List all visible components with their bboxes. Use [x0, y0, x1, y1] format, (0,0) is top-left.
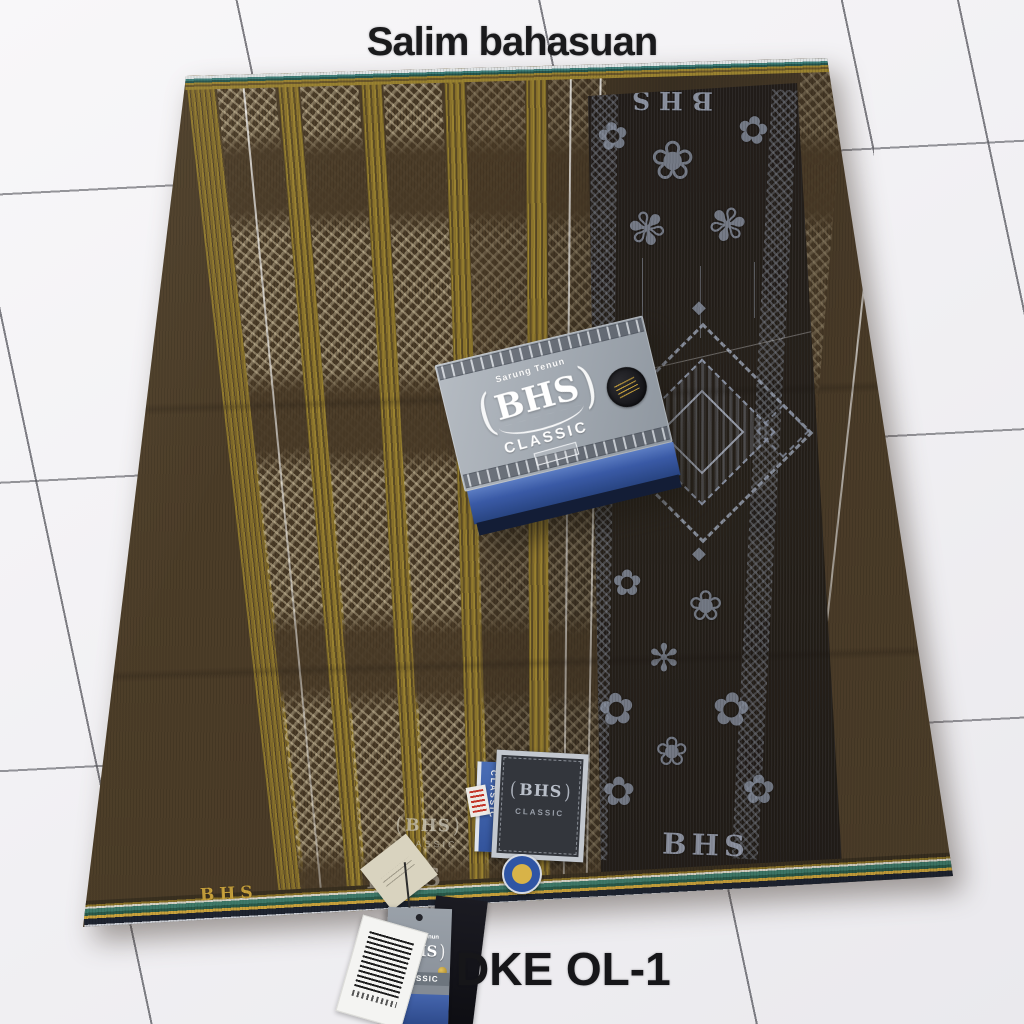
floral-motif: ✿: [595, 116, 632, 158]
diamond-dot: ◆: [692, 298, 706, 316]
product-photo: BHS ✿ ✿ ❀ ✾ ✾ ◆ ◆ ✿ ❀ ✻ ✿ ✿: [0, 0, 1024, 1024]
bottom-caption: DKE OL-1: [456, 942, 671, 996]
floral-motif: ✿: [612, 565, 642, 601]
floral-motif: ✿: [596, 686, 637, 734]
sticker-stripes: [469, 789, 487, 813]
seal-text-lines: [614, 376, 640, 399]
top-caption: Salim bahasuan: [0, 20, 1024, 65]
floral-motif: ❀: [688, 585, 723, 627]
floral-motif: ✿: [602, 772, 636, 812]
stem-line: [642, 258, 643, 320]
round-hologram-sticker: [502, 854, 542, 894]
diamond-dot: ◆: [692, 544, 706, 562]
floral-motif: ✿: [710, 684, 753, 734]
woven-selvage-brand: BHS: [200, 883, 259, 906]
barcode-icon: [354, 930, 414, 998]
stamp-lines: [380, 857, 415, 887]
butterfly-motif: ✾: [622, 201, 673, 257]
tag-hole: [416, 914, 423, 921]
floral-motif: ❀: [650, 134, 695, 188]
stem-line: [754, 262, 755, 318]
floral-motif: ✿: [734, 110, 772, 153]
floral-motif: ✿: [742, 770, 776, 810]
butterfly-motif: ✾: [702, 197, 753, 253]
woven-brand-bottom: BHS: [635, 826, 776, 865]
woven-label-tag: BHS CLASSIC: [491, 750, 589, 863]
floral-motif: ❀: [655, 732, 689, 772]
label-ornate-border: [499, 757, 582, 855]
woven-brand-top: BHS: [598, 85, 738, 115]
emblem-brand: BHS: [384, 815, 472, 837]
